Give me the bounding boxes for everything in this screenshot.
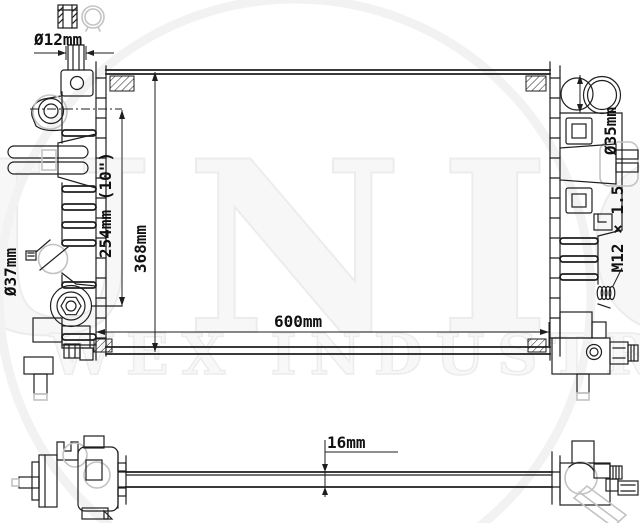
front-view: Ø12mm 254mm (10") 368mm Ø37mm 600mm: [1, 5, 638, 400]
fin-block-bottom-left: [94, 339, 112, 352]
bottom-left-assembly: [12, 436, 126, 519]
sensor-thread-label: M12 × 1.5: [608, 186, 627, 273]
core-thickness-label: 16mm: [327, 433, 366, 452]
port-spacing-label: 254mm (10"): [96, 152, 115, 258]
clamp-part: [82, 6, 104, 31]
inlet-diameter-label: Ø35mm: [601, 107, 620, 157]
core-edge-view: [126, 472, 552, 487]
filler-diameter-label: Ø37mm: [1, 248, 20, 298]
core-height-label: 368mm: [131, 225, 150, 274]
fin-block-top-right: [526, 76, 546, 91]
core: [94, 62, 560, 360]
drain-plug: [51, 286, 123, 327]
drain-cap-part: [58, 5, 77, 28]
right-outlet-assembly: [552, 312, 638, 400]
fin-block-top-left: [110, 76, 134, 91]
radiator-line-drawing: Ø12mm 254mm (10") 368mm Ø37mm 600mm: [0, 0, 640, 523]
watermark-ring: [0, 0, 591, 523]
left-mounting-bracket: [24, 318, 93, 400]
bottom-right-assembly: [552, 441, 638, 523]
core-width-label: 600mm: [274, 312, 323, 331]
cap-diameter-label: Ø12mm: [33, 30, 83, 49]
fin-block-bottom-right: [528, 339, 546, 352]
radiator-technical-drawing: UNIO WEX INDUSTRIES: [0, 0, 640, 523]
